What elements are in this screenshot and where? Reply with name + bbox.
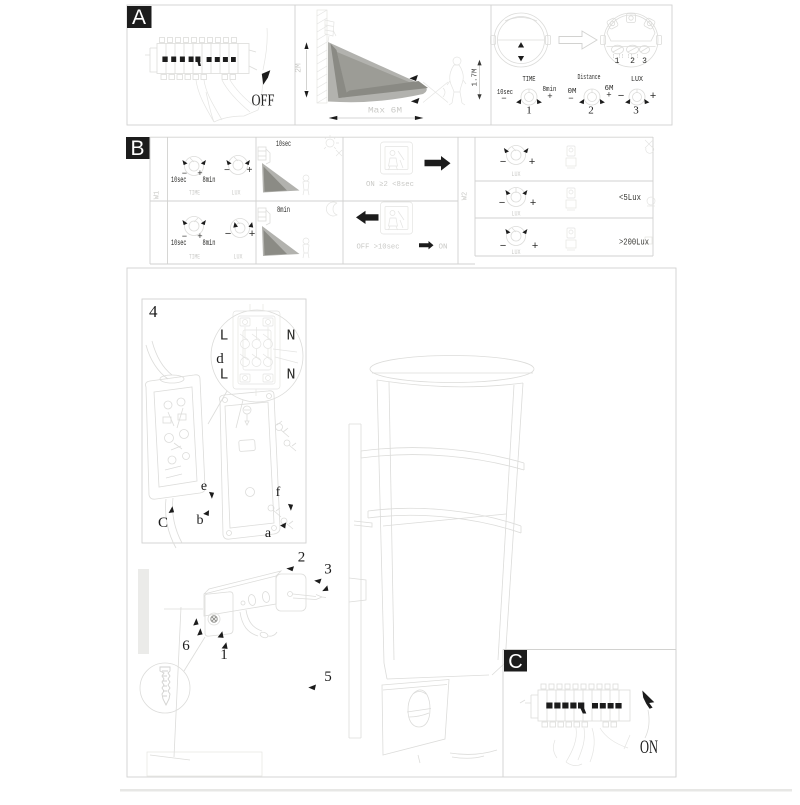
svg-text:ON: ON <box>640 737 658 758</box>
svg-text:6: 6 <box>182 638 190 654</box>
svg-text:−: − <box>501 94 506 104</box>
svg-text:f: f <box>276 485 281 500</box>
svg-text:−: − <box>499 198 506 210</box>
svg-text:N: N <box>286 367 295 384</box>
svg-text:W1: W1 <box>154 191 162 199</box>
svg-text:10sec: 10sec <box>171 239 187 248</box>
svg-text:3: 3 <box>633 105 639 117</box>
svg-text:+: + <box>529 157 536 169</box>
svg-text:TIME: TIME <box>189 254 200 261</box>
svg-text:5: 5 <box>324 669 332 685</box>
svg-text:>200Lux: >200Lux <box>619 238 649 248</box>
svg-text:3: 3 <box>324 562 332 578</box>
svg-text:+: + <box>547 92 552 102</box>
svg-text:N: N <box>286 328 295 345</box>
svg-text:L: L <box>219 367 228 384</box>
svg-text:LUX: LUX <box>512 211 521 218</box>
svg-text:OFF >10sec: OFF >10sec <box>357 244 400 252</box>
svg-text:8min: 8min <box>203 239 216 248</box>
svg-text:−: − <box>568 94 573 104</box>
svg-text:B: B <box>130 137 144 160</box>
svg-text:d: d <box>216 351 224 367</box>
svg-text:C: C <box>508 651 522 673</box>
svg-text:LUX: LUX <box>232 190 241 197</box>
svg-text:+: + <box>530 198 537 210</box>
svg-text:TIME: TIME <box>189 190 200 197</box>
svg-text:2: 2 <box>630 57 635 66</box>
svg-text:1: 1 <box>526 105 532 117</box>
svg-text:10sec: 10sec <box>171 176 187 185</box>
svg-text:e: e <box>201 479 207 494</box>
svg-text:1: 1 <box>615 57 620 66</box>
svg-text:<5Lux: <5Lux <box>619 193 641 203</box>
svg-text:−: − <box>500 241 507 253</box>
svg-text:−: − <box>224 166 230 177</box>
svg-text:OFF: OFF <box>252 91 275 110</box>
svg-text:Distance: Distance <box>578 74 601 82</box>
svg-text:1.7M: 1.7M <box>471 68 479 87</box>
svg-text:+: + <box>532 241 539 253</box>
svg-text:C: C <box>158 515 168 531</box>
svg-text:Max 6M: Max 6M <box>368 106 402 116</box>
svg-text:2: 2 <box>298 550 306 566</box>
svg-text:+: + <box>606 91 611 101</box>
svg-text:a: a <box>265 526 272 541</box>
svg-text:LUX: LUX <box>234 254 243 261</box>
svg-text:LUX: LUX <box>512 249 521 256</box>
svg-text:8min: 8min <box>277 206 290 215</box>
svg-text:LUX: LUX <box>512 171 521 178</box>
svg-text:8min: 8min <box>203 176 216 185</box>
svg-text:LUX: LUX <box>631 76 643 84</box>
svg-text:TIME: TIME <box>523 76 536 84</box>
svg-text:2: 2 <box>588 105 594 117</box>
svg-text:b: b <box>197 513 204 528</box>
svg-text:−: − <box>618 91 625 103</box>
svg-text:+: + <box>650 91 657 103</box>
svg-text:10sec: 10sec <box>276 140 291 149</box>
svg-text:+: + <box>246 166 252 177</box>
svg-text:2M: 2M <box>295 63 304 73</box>
svg-text:A: A <box>132 6 146 29</box>
svg-text:4: 4 <box>149 302 158 321</box>
svg-text:ON ≥2 <8sec: ON ≥2 <8sec <box>366 181 414 189</box>
svg-text:ON: ON <box>438 243 447 251</box>
svg-text:−: − <box>225 229 232 241</box>
svg-text:3: 3 <box>642 57 647 66</box>
svg-text:+: + <box>249 229 256 241</box>
svg-text:L: L <box>219 328 228 345</box>
svg-text:W2: W2 <box>462 192 470 200</box>
svg-text:1: 1 <box>220 647 228 663</box>
svg-text:−: − <box>500 157 507 169</box>
